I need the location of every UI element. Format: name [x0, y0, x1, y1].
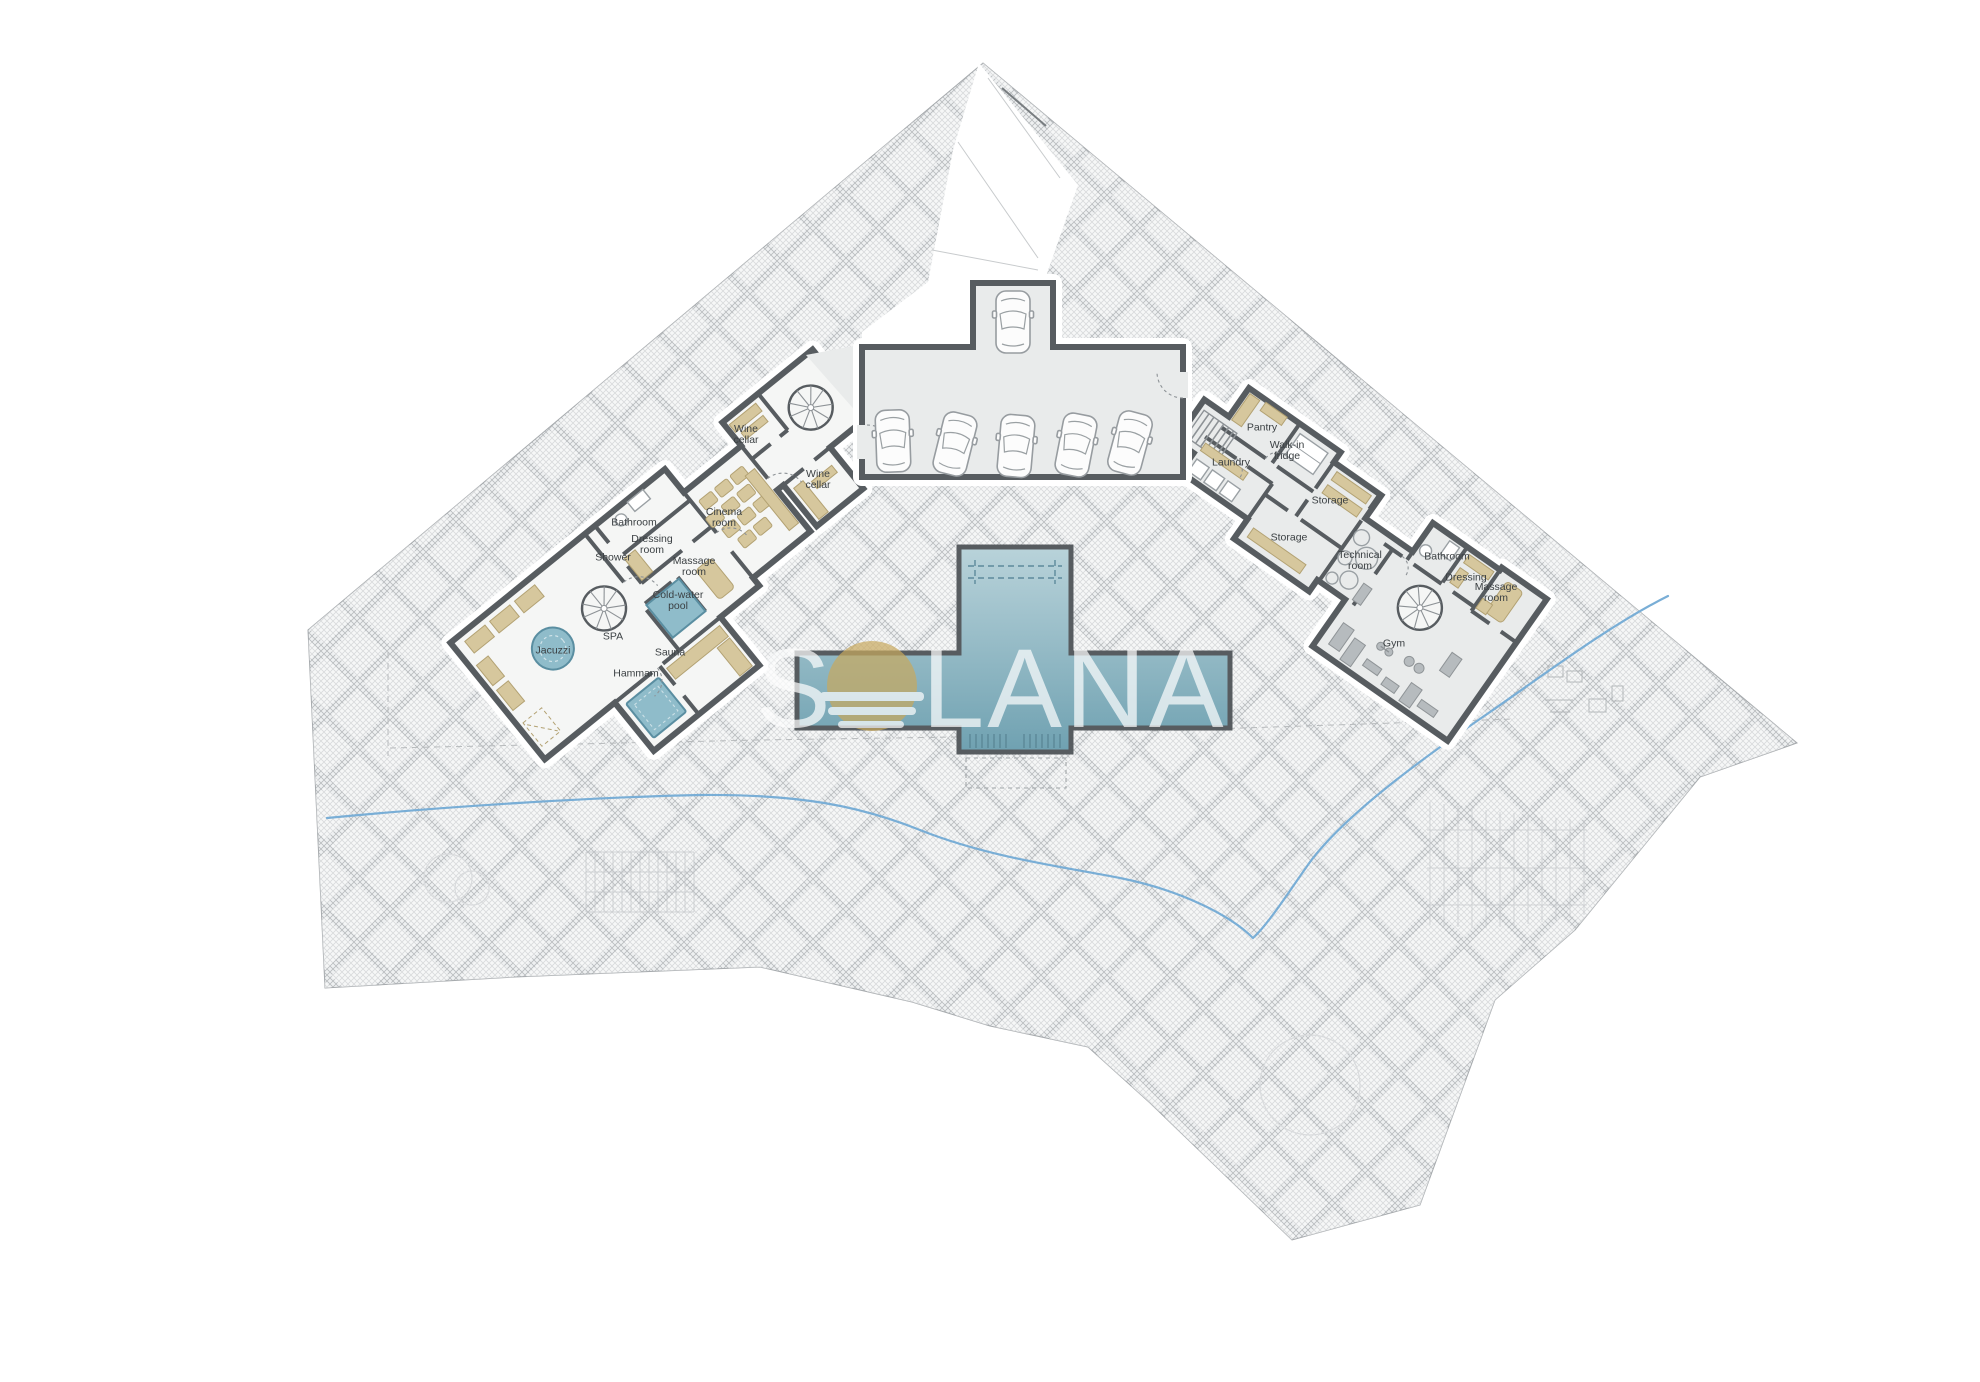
- watermark-letter-s: S: [756, 626, 834, 751]
- watermark: S LANA: [756, 626, 1227, 751]
- room-label-bathroom-right: Bathroom: [1424, 551, 1470, 563]
- room-label-walk-in-fridge: Walk-infridge: [1270, 439, 1305, 462]
- room-label-laundry: Laundry: [1212, 457, 1251, 469]
- room-label-sauna: Sauna: [655, 647, 686, 659]
- watermark-letters-lana: LANA: [922, 626, 1227, 751]
- car: [871, 409, 914, 472]
- room-label-shower: Shower: [595, 552, 631, 564]
- room-label-wine-cellar-b: Winecellar: [805, 468, 831, 491]
- room-label-storage-a: Storage: [1312, 495, 1349, 507]
- floor-plan-canvas: S LANA WinecellarWinecellarCinemaroomBat…: [0, 0, 1980, 1382]
- room-label-hammam: Hammam: [613, 668, 659, 680]
- garage-door-right: [1178, 372, 1188, 398]
- room-label-spa: SPA: [603, 631, 623, 643]
- room-label-wine-cellar-a: Winecellar: [733, 423, 759, 446]
- room-label-gym: Gym: [1383, 638, 1405, 650]
- floor-plan-page: S LANA WinecellarWinecellarCinemaroomBat…: [0, 0, 1980, 1382]
- room-label-jacuzzi: Jacuzzi: [535, 645, 570, 657]
- car: [993, 291, 1034, 353]
- room-label-storage-b: Storage: [1271, 532, 1308, 544]
- room-label-bathroom-left: Bathroom: [611, 517, 657, 529]
- garage-door-left: [857, 425, 867, 459]
- room-label-pantry: Pantry: [1247, 422, 1278, 434]
